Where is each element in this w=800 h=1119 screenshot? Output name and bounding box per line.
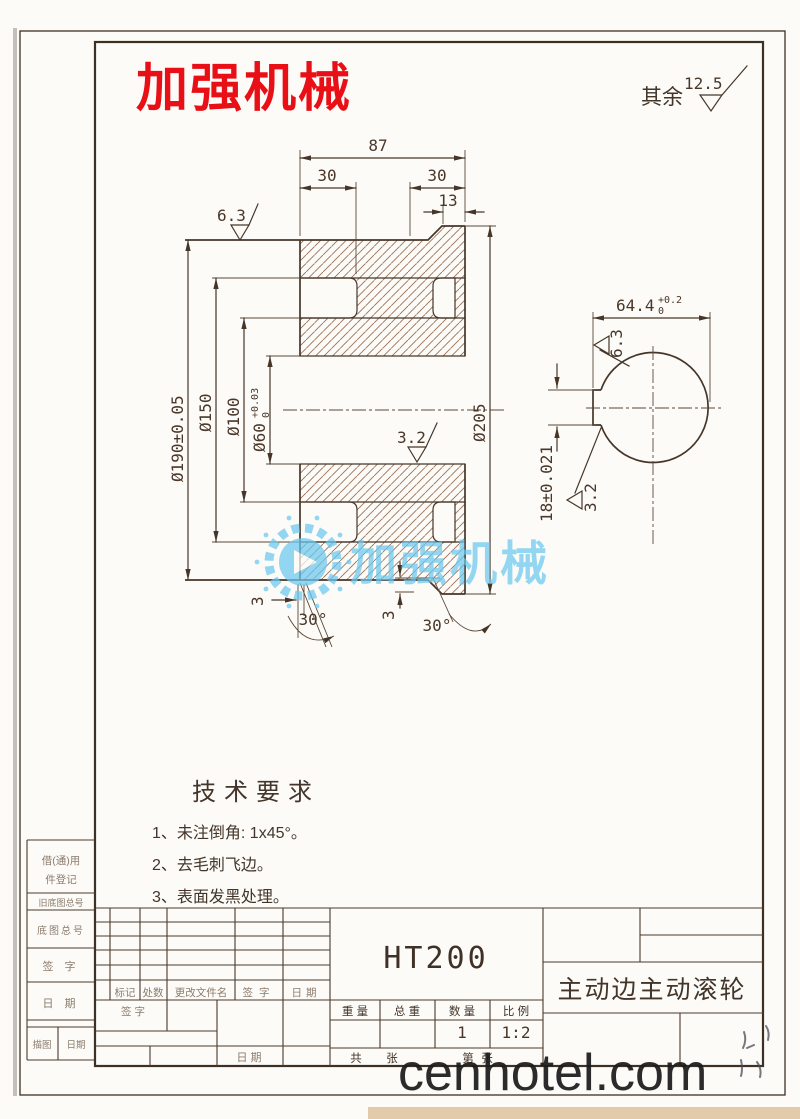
chamfer-left-annotation: 3 30° [248, 583, 334, 647]
finish-side-keyway: 3.2 [567, 428, 601, 512]
red-brand-watermark: 加强机械 [136, 60, 352, 118]
tech-requirement-item: 1、未注倒角: 1x45°。 [152, 824, 307, 842]
roughness-note-value: 12.5 [684, 74, 723, 93]
svg-text:0: 0 [261, 412, 272, 418]
drawing-sheet: 加强机械 其余 12.5 [0, 0, 800, 1119]
svg-text:3: 3 [379, 610, 398, 620]
pen-marks [741, 1026, 769, 1077]
svg-text:6.3: 6.3 [607, 329, 626, 358]
svg-text:共: 共 [350, 1052, 362, 1065]
svg-text:Ø60: Ø60 [250, 423, 269, 452]
margin-trace-date-label: 日期 [66, 1040, 85, 1051]
svg-text:更改文件名: 更改文件名 [175, 986, 228, 999]
side-view-centerlines [586, 346, 722, 545]
margin-strip: 借(通)用 件登记 旧底图总号 底图总号 签 字 日 期 描图 日期 [27, 840, 95, 1060]
svg-text:Ø100: Ø100 [224, 397, 243, 436]
dim-rim-width: 13 [424, 191, 484, 224]
revision-header: 标记 处数 更改文件名 签字 日期 [115, 986, 321, 999]
svg-text:6.3: 6.3 [217, 206, 246, 225]
svg-text:3: 3 [248, 596, 267, 606]
general-roughness-note: 其余 12.5 [641, 66, 747, 111]
drawing-canvas: 加强机械 其余 12.5 [0, 0, 800, 1119]
side-view: 64.4 +0.2 0 18±0.021 6.3 3.2 [537, 295, 722, 545]
tech-requirements: 技术要求 1、未注倒角: 1x45°。 2、去毛刺飞边。 3、表面发黑处理。 [152, 779, 320, 906]
svg-text:30°: 30° [423, 616, 452, 635]
svg-text:Ø190±0.05: Ø190±0.05 [168, 395, 187, 482]
svg-text:64.4: 64.4 [616, 296, 655, 315]
margin-date-label: 日 期 [42, 997, 79, 1010]
svg-text:30: 30 [427, 166, 446, 185]
keyway-slot [593, 390, 601, 425]
site-watermark: cenhotel.com [398, 1044, 707, 1102]
gear-logo-icon [255, 516, 352, 609]
svg-text:+0.03: +0.03 [250, 388, 261, 418]
margin-sign-label: 签 字 [42, 959, 79, 973]
svg-text:比 例: 比 例 [503, 1004, 529, 1018]
svg-text:处数: 处数 [143, 986, 164, 999]
quantity-value: 1 [457, 1023, 467, 1042]
dim-dia-outer: Ø190±0.05 [168, 240, 188, 580]
svg-text:+0.2: +0.2 [658, 295, 682, 306]
svg-text:18±0.021: 18±0.021 [537, 445, 556, 522]
svg-text:30°: 30° [299, 610, 328, 629]
dim-total-width: 87 [300, 136, 465, 236]
margin-trace-label: 描图 [32, 1039, 51, 1051]
svg-text:87: 87 [368, 136, 387, 155]
roughness-note-label: 其余 [641, 86, 683, 109]
margin-old-base-no: 旧底图总号 [38, 897, 83, 908]
date-cell-label: 日 期 [236, 1051, 261, 1064]
tech-requirement-item: 2、去毛刺飞边。 [152, 856, 273, 874]
center-watermark-text: 加强机械 [350, 537, 550, 590]
scale-value: 1:2 [502, 1023, 531, 1042]
svg-text:Ø205: Ø205 [470, 403, 489, 442]
svg-text:3.2: 3.2 [397, 428, 426, 447]
svg-text:数 量: 数 量 [449, 1004, 475, 1018]
svg-text:张: 张 [386, 1052, 398, 1065]
svg-text:签字: 签字 [243, 986, 276, 999]
sign-row-label: 签 字 [121, 1005, 145, 1018]
bore-circle [601, 353, 708, 463]
margin-borrow-label: 借(通)用 [42, 855, 81, 867]
svg-text:13: 13 [438, 191, 457, 210]
tech-requirements-title: 技术要求 [192, 779, 320, 806]
finish-bore: 3.2 [397, 423, 437, 462]
tech-requirement-item: 3、表面发黑处理。 [152, 888, 289, 906]
margin-base-no: 底图总号 [37, 924, 85, 937]
margin-borrow-label2: 件登记 [45, 873, 77, 886]
svg-text:0: 0 [658, 306, 664, 317]
svg-text:重 量: 重 量 [342, 1004, 368, 1018]
svg-text:30: 30 [317, 166, 336, 185]
svg-text:3.2: 3.2 [581, 483, 600, 512]
part-name-cell: 主动边主动滚轮 [557, 976, 746, 1004]
svg-text:日期: 日期 [292, 987, 321, 999]
finish-face: 6.3 [217, 204, 258, 240]
svg-text:Ø150: Ø150 [196, 393, 215, 432]
material-cell: HT200 [383, 941, 488, 976]
svg-text:总 重: 总 重 [394, 1004, 420, 1018]
svg-text:标记: 标记 [115, 987, 136, 999]
